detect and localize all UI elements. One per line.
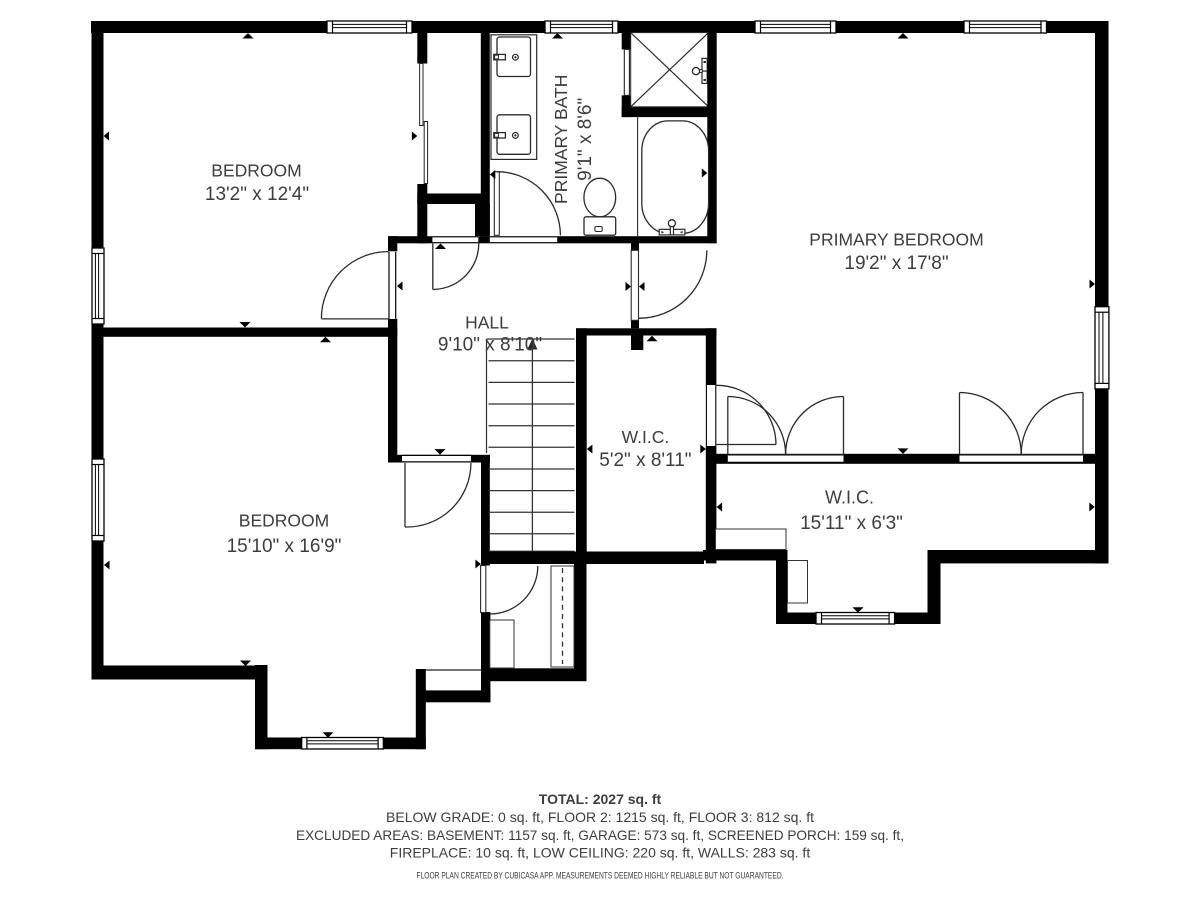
svg-text:PRIMARY BEDROOM: PRIMARY BEDROOM <box>809 230 983 250</box>
svg-text:W.I.C.: W.I.C. <box>825 488 874 508</box>
svg-text:9'10" x 8'10": 9'10" x 8'10" <box>438 335 542 356</box>
svg-text:13'2" x 12'4": 13'2" x 12'4" <box>205 184 309 205</box>
svg-text:FLOOR PLAN CREATED BY CUBICASA: FLOOR PLAN CREATED BY CUBICASA APP. MEAS… <box>417 870 784 880</box>
svg-text:5'2" x 8'11": 5'2" x 8'11" <box>599 450 691 471</box>
svg-text:15'11" x 6'3": 15'11" x 6'3" <box>800 513 903 534</box>
svg-text:BEDROOM: BEDROOM <box>239 511 329 531</box>
svg-text:HALL: HALL <box>465 313 509 333</box>
svg-text:PRIMARY BATH: PRIMARY BATH <box>551 75 571 204</box>
svg-text:EXCLUDED AREAS: BASEMENT: 1157: EXCLUDED AREAS: BASEMENT: 1157 sq. ft, G… <box>296 827 904 843</box>
svg-text:FIREPLACE: 10 sq. ft, LOW CEIL: FIREPLACE: 10 sq. ft, LOW CEILING: 220 s… <box>390 844 811 860</box>
svg-text:TOTAL: 2027 sq. ft: TOTAL: 2027 sq. ft <box>539 791 662 807</box>
svg-text:BELOW GRADE: 0 sq. ft, FLOOR 2: BELOW GRADE: 0 sq. ft, FLOOR 2: 1215 sq.… <box>386 809 814 825</box>
svg-text:W.I.C.: W.I.C. <box>622 427 670 447</box>
svg-text:15'10" x 16'9": 15'10" x 16'9" <box>227 536 342 557</box>
svg-text:19'2" x 17'8": 19'2" x 17'8" <box>844 253 948 274</box>
svg-text:BEDROOM: BEDROOM <box>211 161 301 181</box>
svg-text:9'1" x 8'6": 9'1" x 8'6" <box>575 98 596 181</box>
